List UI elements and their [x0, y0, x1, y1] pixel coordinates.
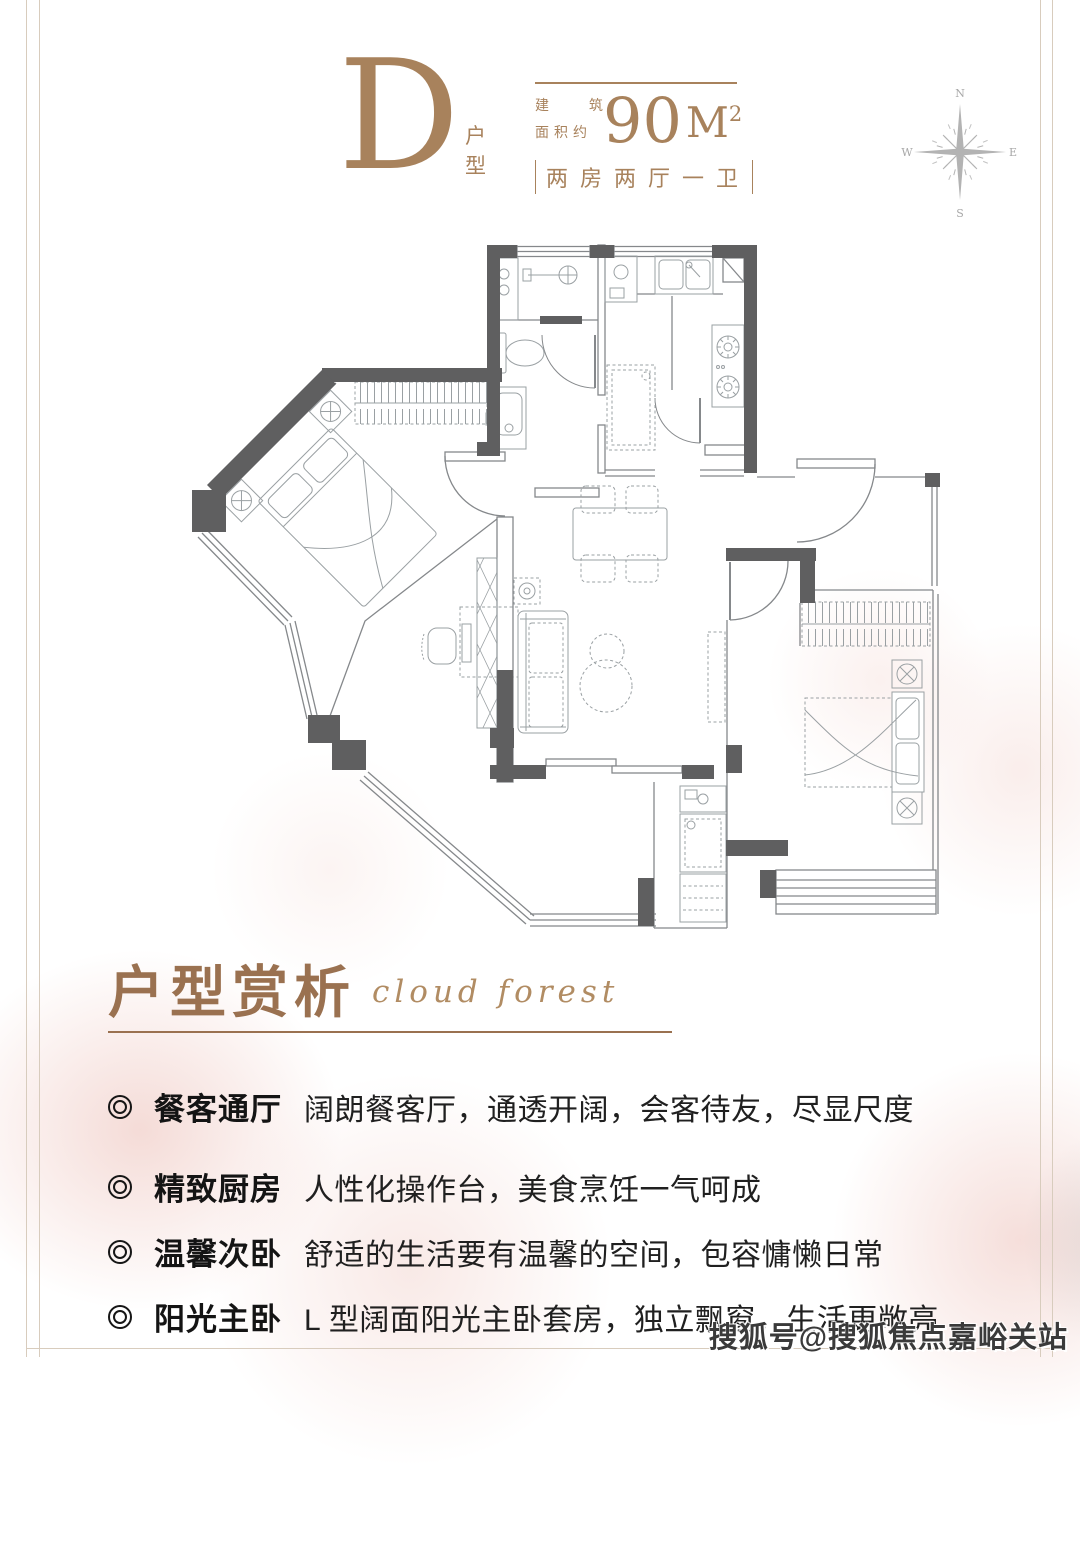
dining-set: [573, 486, 667, 582]
compass-icon: N E S W: [900, 80, 1020, 225]
area-label: 建 筑 面积约: [535, 92, 599, 147]
feature-description: 阔朗餐客厅，通透开阔，会客待友，尽显尺度: [304, 1085, 914, 1129]
structure-lines: [198, 245, 938, 928]
living-room: [514, 578, 632, 733]
feature-description: 人性化操作台，美食烹饪一气呵成: [304, 1165, 762, 1209]
walls: [192, 245, 940, 926]
feature-label: 阳光主卧: [154, 1294, 282, 1339]
compass-north-label: N: [955, 87, 965, 100]
section-title: 户型赏析: [108, 948, 356, 1029]
bracket-left-icon: [535, 160, 536, 194]
feature-dining-hall: 餐客通厅 阔朗餐客厅，通透开阔，会客待友，尽显尺度: [108, 1084, 914, 1129]
compass-south-label: S: [956, 207, 964, 220]
feature-kitchen: 精致厨房 人性化操作台，美食烹饪一气呵成: [108, 1164, 762, 1209]
feature-label: 餐客通厅: [154, 1084, 282, 1129]
section-subtitle-script: cloud forest: [372, 974, 619, 1010]
area-value: 90: [603, 92, 682, 151]
unit-letter: D: [338, 40, 460, 192]
compass-needles: [914, 104, 1006, 200]
bracket-right-icon: [752, 160, 753, 194]
area-superscript: 2: [729, 102, 742, 126]
tv-lattice-wall: [477, 558, 497, 728]
fixtures: [220, 256, 930, 922]
rooms-summary: 两房两厅一卫: [535, 160, 745, 194]
frame-line-left-outer: [26, 0, 27, 1357]
frame-line-left-inner: [39, 0, 40, 1357]
bullseye-icon: [108, 1240, 132, 1264]
frame-line-right-inner: [1040, 0, 1041, 1357]
unit-type-label: 户型: [465, 122, 489, 183]
watermark-text: 搜狐号@搜狐焦点嘉峪关站: [709, 1314, 1068, 1356]
compass-east-label: E: [1009, 146, 1017, 159]
rooms-text: 两房两厅一卫: [546, 161, 750, 193]
second-bed: [220, 390, 455, 625]
bullseye-icon: [108, 1305, 132, 1329]
stove-burners: [717, 336, 740, 398]
floor-plan-drawing: [140, 230, 960, 930]
feature-label: 精致厨房: [154, 1164, 282, 1209]
section-underline: [108, 1031, 672, 1033]
fridge: [607, 365, 655, 450]
area-block: 建 筑 面积约 90 M2 两房两厅一卫: [535, 82, 745, 194]
nightstand-bottom: [892, 792, 922, 824]
bullseye-icon: [108, 1175, 132, 1199]
compass-west-label: W: [901, 146, 913, 159]
feature-label: 温馨次卧: [154, 1229, 282, 1274]
frame-line-right-outer: [1052, 0, 1053, 1357]
area-unit: M2: [686, 102, 742, 144]
feature-description: 舒适的生活要有温馨的空间，包容慵懒日常: [304, 1230, 884, 1274]
kitchen: [605, 256, 744, 450]
bullseye-icon: [108, 1095, 132, 1119]
utility-room: [680, 786, 726, 922]
feature-second-bedroom: 温馨次卧 舒适的生活要有温馨的空间，包容慵懒日常: [108, 1229, 884, 1274]
nightstand-top: [892, 660, 922, 688]
master-bedroom: [708, 602, 930, 824]
